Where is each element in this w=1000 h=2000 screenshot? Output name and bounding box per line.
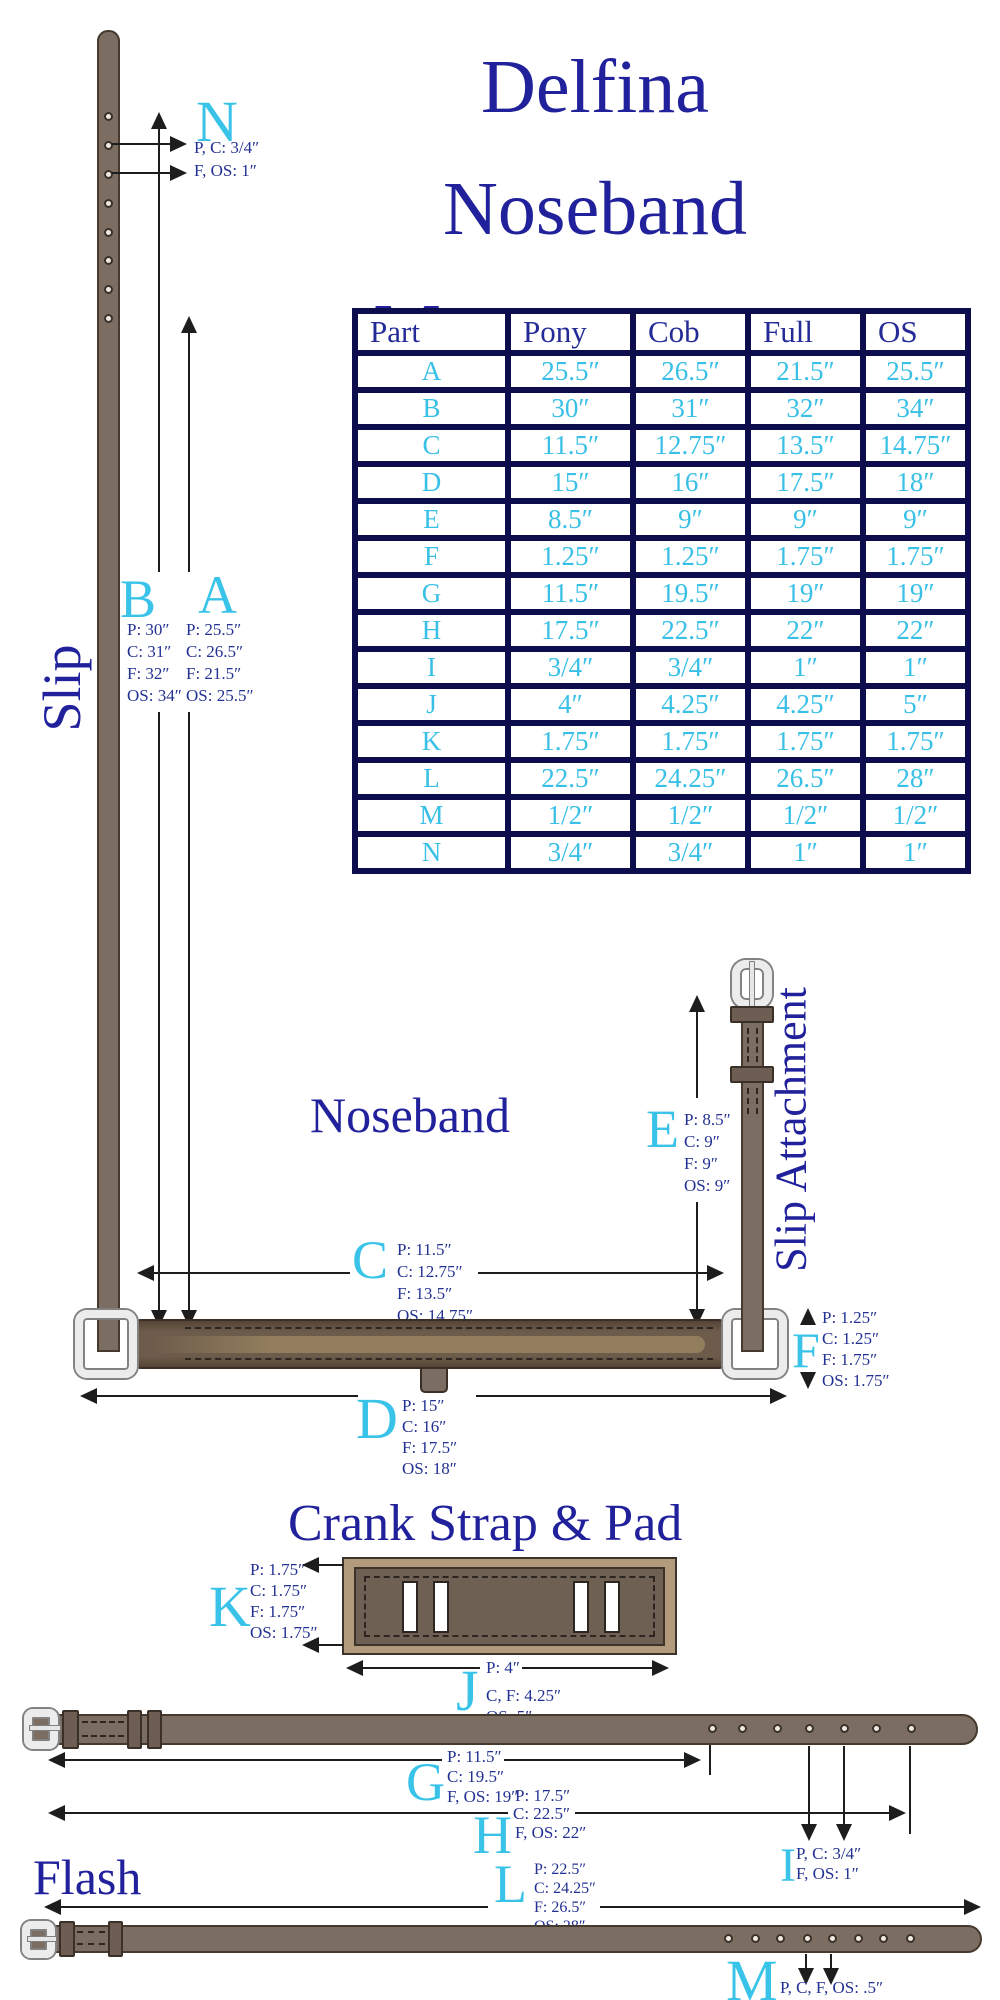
dim-m-line-1: P, C, F, OS: .5″ [780, 1978, 883, 1998]
table-cell-value: 19.5″ [633, 575, 748, 612]
table-cell-value: 1.75″ [863, 723, 968, 760]
dim-letter-k: K [209, 1578, 251, 1636]
table-cell-value: 4.25″ [633, 686, 748, 723]
dim-e-line-4: OS: 9″ [684, 1176, 730, 1196]
table-cell-value: 1″ [863, 834, 968, 871]
dim-c-line-1: P: 11.5″ [397, 1240, 452, 1260]
table-cell-value: 25.5″ [863, 353, 968, 390]
stitch-line [756, 1028, 758, 1062]
table-cell-value: 19″ [748, 575, 863, 612]
dim-e-line [696, 1012, 698, 1098]
dim-letter-e: E [646, 1102, 679, 1156]
dim-n-line-2: F, OS: 1″ [194, 161, 257, 181]
dim-f-line-2: C: 1.25″ [822, 1329, 879, 1349]
dim-h-extension-line [909, 1746, 911, 1834]
dim-letter-f: F [792, 1325, 820, 1375]
strap-hole [776, 1934, 785, 1943]
strap-hole [803, 1934, 812, 1943]
table-cell-value: 17.5″ [748, 464, 863, 501]
dim-g-line-3: F, OS: 19″ [447, 1787, 518, 1807]
strap-hole [907, 1724, 916, 1733]
strap-hole [104, 228, 113, 237]
arrowhead-down [836, 1824, 852, 1841]
dim-h-line-3: F, OS: 22″ [515, 1823, 586, 1843]
dim-g-extension-line [709, 1745, 711, 1775]
arrowhead-left [44, 1899, 61, 1915]
arrowhead-right [170, 136, 187, 152]
buckle-prong [750, 962, 754, 1006]
dim-l-line-2: C: 24.25″ [534, 1879, 596, 1899]
arrowhead-left [48, 1752, 65, 1768]
table-cell-value: 26.5″ [633, 353, 748, 390]
table-cell-part: H [355, 612, 508, 649]
table-cell-value: 1.75″ [748, 723, 863, 760]
strap-hole [906, 1934, 915, 1943]
dim-c-line-2: C: 12.75″ [397, 1262, 463, 1282]
strap-hole [104, 314, 113, 323]
stitch-line [82, 1721, 124, 1723]
strap-hole [805, 1724, 814, 1733]
table-cell-value: 11.5″ [508, 575, 633, 612]
page-title-line-1: Delfina [250, 26, 940, 148]
table-cell-value: 24.25″ [633, 760, 748, 797]
crank-pad-slot [402, 1581, 418, 1633]
dim-d-line [96, 1395, 358, 1397]
dim-d-line-2: C: 16″ [402, 1417, 446, 1437]
dim-l-line [600, 1906, 964, 1908]
table-cell-value: 17.5″ [508, 612, 633, 649]
table-cell-value: 9″ [633, 501, 748, 538]
table-cell-value: 13.5″ [748, 427, 863, 464]
dim-k-line-2: C: 1.75″ [250, 1581, 307, 1601]
table-row: I 3/4″ 3/4″ 1″ 1″ [355, 649, 968, 686]
noseband-strap-highlight [150, 1336, 705, 1353]
arrowhead-down [800, 1372, 816, 1389]
arrowhead-up [689, 995, 705, 1012]
slip-attachment-strap [741, 1000, 764, 1352]
stitch-line [77, 1943, 105, 1945]
table-row: C 11.5″ 12.75″ 13.5″ 14.75″ [355, 427, 968, 464]
dim-letter-d: D [356, 1390, 398, 1448]
table-cell-value: 1″ [748, 834, 863, 871]
table-cell-part: G [355, 575, 508, 612]
table-cell-value: 3/4″ [508, 834, 633, 871]
arrowhead-right [652, 1660, 669, 1676]
table-row: N 3/4″ 3/4″ 1″ 1″ [355, 834, 968, 871]
table-cell-value: 4″ [508, 686, 633, 723]
dim-n-arrow-line [112, 143, 170, 145]
dim-d-line [476, 1395, 770, 1397]
dim-n-arrow-line [112, 172, 170, 174]
dim-d-line-3: F: 17.5″ [402, 1438, 457, 1458]
arrowhead-left [48, 1805, 65, 1821]
dim-i-line-1: P, C: 3/4″ [796, 1844, 861, 1864]
table-row: A 25.5″ 26.5″ 21.5″ 25.5″ [355, 353, 968, 390]
dim-h-line-2: C: 22.5″ [513, 1804, 570, 1824]
table-cell-value: 22″ [863, 612, 968, 649]
strap-hole [854, 1934, 863, 1943]
strap-hole [104, 285, 113, 294]
arrowhead-right [170, 165, 187, 181]
table-cell-value: 22″ [748, 612, 863, 649]
table-row: M 1/2″ 1/2″ 1/2″ 1/2″ [355, 797, 968, 834]
crank-section-title: Crank Strap & Pad [288, 1494, 682, 1553]
flash-strap-bottom [24, 1925, 982, 1953]
noseband-tab [420, 1367, 448, 1393]
strap-hole [840, 1724, 849, 1733]
dim-f-line-1: P: 1.25″ [822, 1308, 877, 1328]
stitch-line [756, 1088, 758, 1114]
dim-k-line-1: P: 1.75″ [250, 1560, 305, 1580]
flash-strap [26, 1714, 978, 1745]
dim-f-line-3: F: 1.75″ [822, 1350, 877, 1370]
strap-hole [738, 1724, 747, 1733]
table-cell-part: K [355, 723, 508, 760]
table-row: G 11.5″ 19.5″ 19″ 19″ [355, 575, 968, 612]
dim-m-line [805, 1954, 807, 1968]
dim-k-line-3: F: 1.75″ [250, 1602, 305, 1622]
table-cell-part: D [355, 464, 508, 501]
arrowhead-left [302, 1637, 319, 1653]
dim-letter-l: L [494, 1857, 527, 1911]
strap-hole [724, 1934, 733, 1943]
crank-pad-slot [433, 1581, 449, 1633]
size-table-header-row: Part Pony Cob Full OS [355, 311, 968, 353]
dim-n-line-1: P, C: 3/4″ [194, 138, 259, 158]
strap-hole [104, 112, 113, 121]
table-cell-part: C [355, 427, 508, 464]
table-cell-value: 12.75″ [633, 427, 748, 464]
buckle-prong [28, 1937, 56, 1941]
stitch-line [185, 1327, 713, 1329]
strap-hole [828, 1934, 837, 1943]
dim-a-line [188, 712, 190, 1310]
stitch-line [77, 1931, 105, 1933]
strap-hole [104, 199, 113, 208]
dim-b-line [158, 128, 160, 572]
table-cell-value: 1″ [748, 649, 863, 686]
crank-pad-slot [604, 1581, 620, 1633]
dim-g-line [65, 1759, 442, 1761]
dim-letter-j: J [456, 1662, 479, 1720]
stitch-line [185, 1358, 713, 1360]
table-cell-value: 9″ [748, 501, 863, 538]
size-table: Part Pony Cob Full OS A 25.5″ 26.5″ 21.5… [352, 308, 971, 874]
strap-hole [872, 1724, 881, 1733]
dim-i-line [808, 1746, 810, 1824]
table-cell-part: E [355, 501, 508, 538]
strap-hole [104, 256, 113, 265]
dim-b-line [158, 712, 160, 1310]
table-cell-value: 1.75″ [633, 723, 748, 760]
table-cell-value: 3/4″ [508, 649, 633, 686]
table-cell-value: 1.75″ [748, 538, 863, 575]
table-cell-value: 1″ [863, 649, 968, 686]
dim-letter-c: C [352, 1233, 388, 1287]
table-cell-value: 8.5″ [508, 501, 633, 538]
dim-b-line-3: F: 32″ [127, 664, 170, 684]
dim-f-line-4: OS: 1.75″ [822, 1371, 890, 1391]
dim-g-line-1: P: 11.5″ [447, 1747, 502, 1767]
table-cell-value: 1.75″ [508, 723, 633, 760]
dim-letter-a: A [198, 568, 237, 622]
arrowhead-left [346, 1660, 363, 1676]
dim-a-line [188, 332, 190, 572]
dim-h-line-1: P: 17.5″ [515, 1786, 570, 1806]
dim-letter-m: M [726, 1952, 778, 2000]
table-cell-value: 26.5″ [748, 760, 863, 797]
table-row: E 8.5″ 9″ 9″ 9″ [355, 501, 968, 538]
stitch-line [747, 1088, 749, 1114]
stitch-line [82, 1735, 124, 1737]
table-cell-value: 1/2″ [508, 797, 633, 834]
dim-k-line [319, 1564, 343, 1566]
arrowhead-left [137, 1265, 154, 1281]
table-cell-value: 4.25″ [748, 686, 863, 723]
table-cell-part: B [355, 390, 508, 427]
dim-e-line [696, 1202, 698, 1310]
table-cell-value: 18″ [863, 464, 968, 501]
dim-m-line [830, 1954, 832, 1968]
table-cell-value: 11.5″ [508, 427, 633, 464]
arrowhead-right [707, 1265, 724, 1281]
table-cell-value: 28″ [863, 760, 968, 797]
table-row: K 1.75″ 1.75″ 1.75″ 1.75″ [355, 723, 968, 760]
col-header-part: Part [355, 311, 508, 353]
crank-pad-slot [573, 1581, 589, 1633]
table-cell-value: 3/4″ [633, 649, 748, 686]
dim-k-line [319, 1644, 343, 1646]
dim-h-line [575, 1812, 889, 1814]
strap-keeper [147, 1710, 162, 1749]
table-cell-part: F [355, 538, 508, 575]
table-cell-value: 1/2″ [748, 797, 863, 834]
dim-e-line-1: P: 8.5″ [684, 1110, 731, 1130]
arrowhead-down [801, 1824, 817, 1841]
col-header-full: Full [748, 311, 863, 353]
strap-keeper [108, 1921, 123, 1957]
diagram-page: Delfina Noseband Measurements Slip N P, … [0, 0, 1000, 2000]
table-row: J 4″ 4.25″ 4.25″ 5″ [355, 686, 968, 723]
size-table-body: A 25.5″ 26.5″ 21.5″ 25.5″ B 30″ 31″ 32″ … [355, 353, 968, 871]
dim-i-line-2: F, OS: 1″ [796, 1864, 859, 1884]
col-header-pony: Pony [508, 311, 633, 353]
table-cell-part: M [355, 797, 508, 834]
table-cell-value: 15″ [508, 464, 633, 501]
arrowhead-right [770, 1388, 787, 1404]
dim-g-line [504, 1759, 684, 1761]
table-cell-value: 9″ [863, 501, 968, 538]
arrowhead-right [964, 1899, 981, 1915]
page-title-line-2: Noseband [250, 148, 940, 270]
strap-hole [879, 1934, 888, 1943]
dim-j-line-2: C, F: 4.25″ [486, 1686, 561, 1706]
table-cell-value: 19″ [863, 575, 968, 612]
dim-d-line-1: P: 15″ [402, 1396, 445, 1416]
strap-keeper [127, 1710, 142, 1749]
table-cell-value: 22.5″ [508, 760, 633, 797]
dim-l-line-1: P: 22.5″ [534, 1860, 586, 1880]
strap-keeper [59, 1921, 75, 1957]
table-cell-value: 3/4″ [633, 834, 748, 871]
stitch-line [747, 1028, 749, 1062]
table-cell-value: 16″ [633, 464, 748, 501]
noseband-left-buckle [75, 1310, 137, 1378]
dim-j-line [522, 1667, 652, 1669]
dim-letter-g: G [406, 1755, 445, 1809]
arrowhead-up [151, 112, 167, 129]
dim-b-line-2: C: 31″ [127, 642, 171, 662]
noseband-section-title: Noseband [310, 1086, 510, 1144]
dim-c-line [154, 1272, 350, 1274]
table-cell-value: 21.5″ [748, 353, 863, 390]
slip-section-title: Slip [31, 578, 93, 798]
table-cell-value: 30″ [508, 390, 633, 427]
arrowhead-right [889, 1805, 906, 1821]
table-row: L 22.5″ 24.25″ 26.5″ 28″ [355, 760, 968, 797]
strap-hole [708, 1724, 717, 1733]
flash-section-title: Flash [33, 1848, 141, 1906]
table-cell-part: I [355, 649, 508, 686]
dim-b-line-4: OS: 34″ [127, 686, 182, 706]
table-cell-value: 25.5″ [508, 353, 633, 390]
table-row: B 30″ 31″ 32″ 34″ [355, 390, 968, 427]
table-cell-value: 34″ [863, 390, 968, 427]
table-cell-value: 22.5″ [633, 612, 748, 649]
slip-attachment-section-title: Slip Attachment [766, 940, 817, 1320]
strap-hole [751, 1934, 760, 1943]
arrowhead-left [302, 1557, 319, 1573]
dim-g-line-2: C: 19.5″ [447, 1767, 504, 1787]
table-cell-value: 5″ [863, 686, 968, 723]
arrowhead-up [181, 316, 197, 333]
dim-a-line-4: OS: 25.5″ [186, 686, 254, 706]
strap-hole [773, 1724, 782, 1733]
table-row: H 17.5″ 22.5″ 22″ 22″ [355, 612, 968, 649]
table-cell-part: J [355, 686, 508, 723]
buckle-prong [30, 1726, 60, 1730]
table-row: F 1.25″ 1.25″ 1.75″ 1.75″ [355, 538, 968, 575]
dim-j-line-1: P: 4″ [486, 1658, 520, 1678]
strap-keeper [62, 1710, 79, 1749]
table-row: D 15″ 16″ 17.5″ 18″ [355, 464, 968, 501]
col-header-os: OS [863, 311, 968, 353]
dim-c-line [478, 1272, 707, 1274]
table-cell-part: L [355, 760, 508, 797]
dim-a-line-2: C: 26.5″ [186, 642, 243, 662]
table-cell-value: 1/2″ [863, 797, 968, 834]
table-cell-part: N [355, 834, 508, 871]
dim-a-line-1: P: 25.5″ [186, 620, 241, 640]
dim-e-line-3: F: 9″ [684, 1154, 718, 1174]
table-cell-value: 32″ [748, 390, 863, 427]
dim-letter-b: B [120, 572, 156, 626]
dim-c-line-3: F: 13.5″ [397, 1284, 452, 1304]
table-cell-value: 31″ [633, 390, 748, 427]
dim-i-line [843, 1746, 845, 1824]
table-cell-value: 1.25″ [508, 538, 633, 575]
dim-a-line-3: F: 21.5″ [186, 664, 241, 684]
dim-h-line [65, 1812, 508, 1814]
table-cell-value: 1.25″ [633, 538, 748, 575]
dim-d-line-4: OS: 18″ [402, 1459, 457, 1479]
dim-e-line-2: C: 9″ [684, 1132, 720, 1152]
dim-l-line [61, 1906, 488, 1908]
dim-l-line-3: F: 26.5″ [534, 1898, 586, 1918]
table-cell-part: A [355, 353, 508, 390]
arrowhead-right [684, 1752, 701, 1768]
dim-letter-i: I [780, 1842, 796, 1890]
table-cell-value: 1.75″ [863, 538, 968, 575]
table-cell-value: 14.75″ [863, 427, 968, 464]
dim-b-line-1: P: 30″ [127, 620, 170, 640]
col-header-cob: Cob [633, 311, 748, 353]
arrowhead-left [80, 1388, 97, 1404]
table-cell-value: 1/2″ [633, 797, 748, 834]
